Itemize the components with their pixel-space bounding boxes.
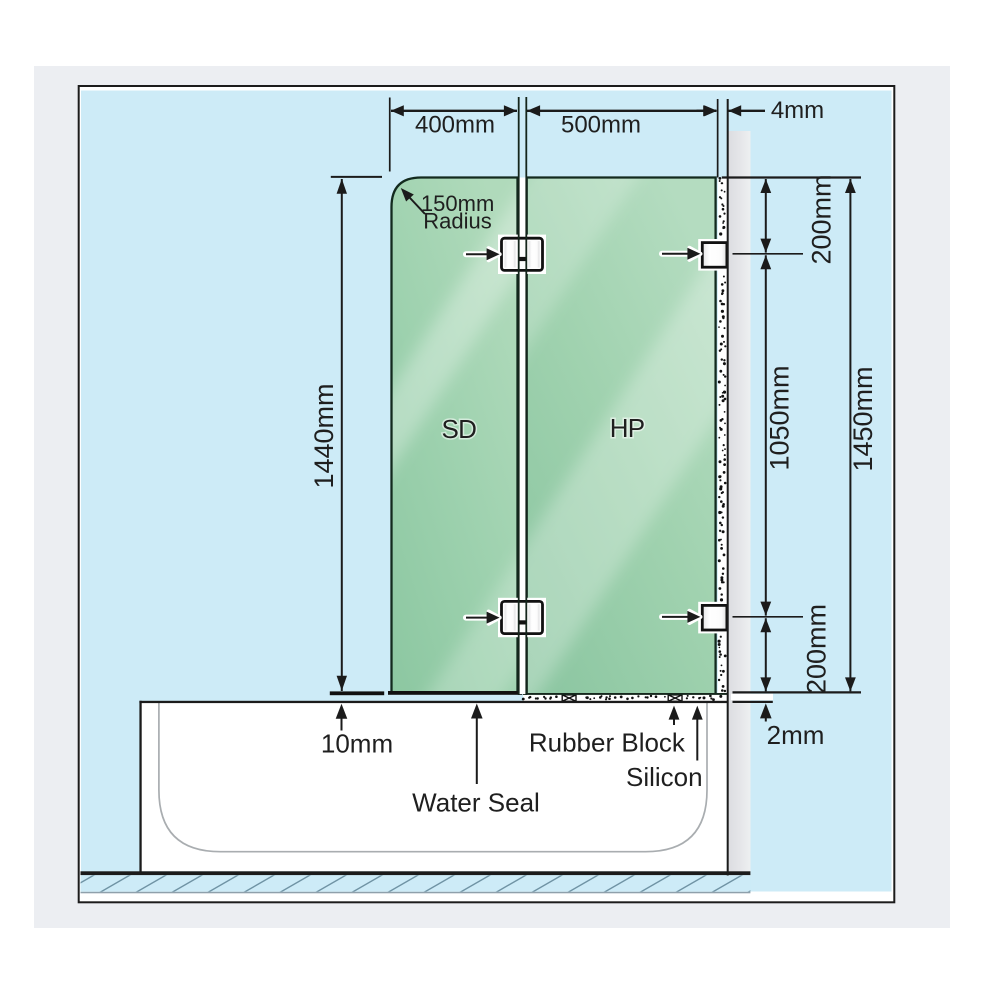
svg-text:SD: SD <box>442 414 477 444</box>
svg-text:Rubber Block: Rubber Block <box>529 728 686 758</box>
svg-text:1050mm: 1050mm <box>765 365 795 470</box>
svg-text:200mm: 200mm <box>802 604 832 694</box>
svg-text:500mm: 500mm <box>561 112 641 139</box>
svg-text:1440mm: 1440mm <box>309 383 339 488</box>
svg-text:2mm: 2mm <box>767 720 825 750</box>
svg-text:1450mm: 1450mm <box>848 366 878 471</box>
svg-text:Water Seal: Water Seal <box>412 787 540 817</box>
svg-text:10mm: 10mm <box>321 729 393 759</box>
svg-text:4mm: 4mm <box>771 97 824 124</box>
svg-text:200mm: 200mm <box>807 174 837 264</box>
svg-text:Radius: Radius <box>423 208 491 233</box>
svg-text:HP: HP <box>610 413 645 443</box>
svg-text:400mm: 400mm <box>415 112 495 139</box>
svg-text:Silicon: Silicon <box>626 762 703 792</box>
